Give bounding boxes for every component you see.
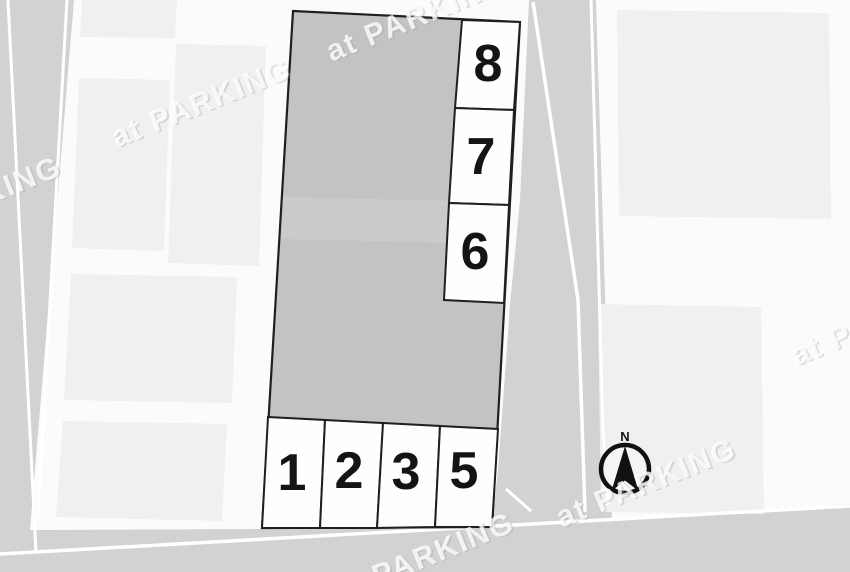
stall-label-8: 8 — [474, 35, 503, 93]
building — [80, 0, 177, 38]
stall-label-3: 3 — [392, 443, 421, 501]
compass-north-label: N — [620, 429, 629, 444]
building — [617, 10, 831, 219]
stall-label-7: 7 — [467, 128, 496, 186]
building — [64, 274, 237, 403]
parking-lot: 8 7 6 1 2 3 5 — [262, 11, 520, 528]
stall-label-6: 6 — [461, 223, 490, 281]
stall-label-5: 5 — [450, 442, 479, 500]
stall-label-2: 2 — [335, 442, 364, 500]
driveway-light-stripe — [281, 197, 460, 243]
parking-map-screenshot: 8 7 6 1 2 3 5 N at PARKING at PARKING at… — [0, 0, 850, 572]
stall-label-1: 1 — [278, 444, 307, 502]
parking-map-canvas: 8 7 6 1 2 3 5 N at PARKING at PARKING at… — [0, 0, 850, 572]
building — [56, 421, 227, 521]
